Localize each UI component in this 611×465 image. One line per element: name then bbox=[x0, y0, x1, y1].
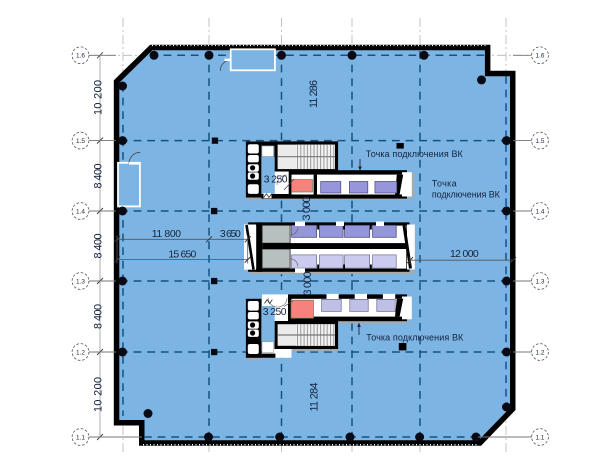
svg-text:3 250: 3 250 bbox=[263, 307, 287, 318]
svg-text:1.6: 1.6 bbox=[76, 53, 85, 60]
svg-text:3 000: 3 000 bbox=[301, 197, 313, 221]
svg-text:8 400: 8 400 bbox=[92, 164, 104, 189]
svg-text:1.4: 1.4 bbox=[76, 208, 85, 215]
svg-text:1.5: 1.5 bbox=[536, 138, 545, 145]
svg-text:1.4: 1.4 bbox=[536, 208, 545, 215]
svg-text:1.6: 1.6 bbox=[536, 53, 545, 60]
svg-text:11 286: 11 286 bbox=[308, 80, 320, 108]
svg-text:подключения ВК: подключения ВК bbox=[432, 190, 501, 200]
svg-text:3 250: 3 250 bbox=[264, 175, 288, 186]
svg-text:8 400: 8 400 bbox=[92, 304, 104, 329]
svg-text:1.1: 1.1 bbox=[536, 434, 545, 441]
svg-text:Точка подключения ВК: Точка подключения ВК bbox=[366, 333, 464, 343]
svg-text:11 800: 11 800 bbox=[152, 229, 182, 240]
svg-text:12 000: 12 000 bbox=[450, 249, 479, 260]
svg-text:10 200: 10 200 bbox=[92, 377, 104, 412]
svg-text:10 200: 10 200 bbox=[92, 80, 104, 115]
svg-text:11 284: 11 284 bbox=[309, 383, 321, 412]
svg-text:3 000: 3 000 bbox=[302, 272, 314, 296]
svg-text:8 400: 8 400 bbox=[92, 234, 104, 259]
svg-text:Точка подключения ВК: Точка подключения ВК bbox=[366, 149, 464, 159]
svg-text:3 650: 3 650 bbox=[220, 229, 241, 240]
svg-text:15 650: 15 650 bbox=[168, 250, 196, 261]
svg-text:1.3: 1.3 bbox=[76, 278, 85, 285]
svg-text:1.5: 1.5 bbox=[76, 138, 85, 145]
svg-text:1.3: 1.3 bbox=[536, 278, 545, 285]
svg-text:Точка: Точка bbox=[432, 178, 457, 188]
svg-text:1.2: 1.2 bbox=[536, 349, 545, 356]
svg-text:1.1: 1.1 bbox=[76, 434, 85, 441]
svg-text:1.2: 1.2 bbox=[76, 349, 85, 356]
